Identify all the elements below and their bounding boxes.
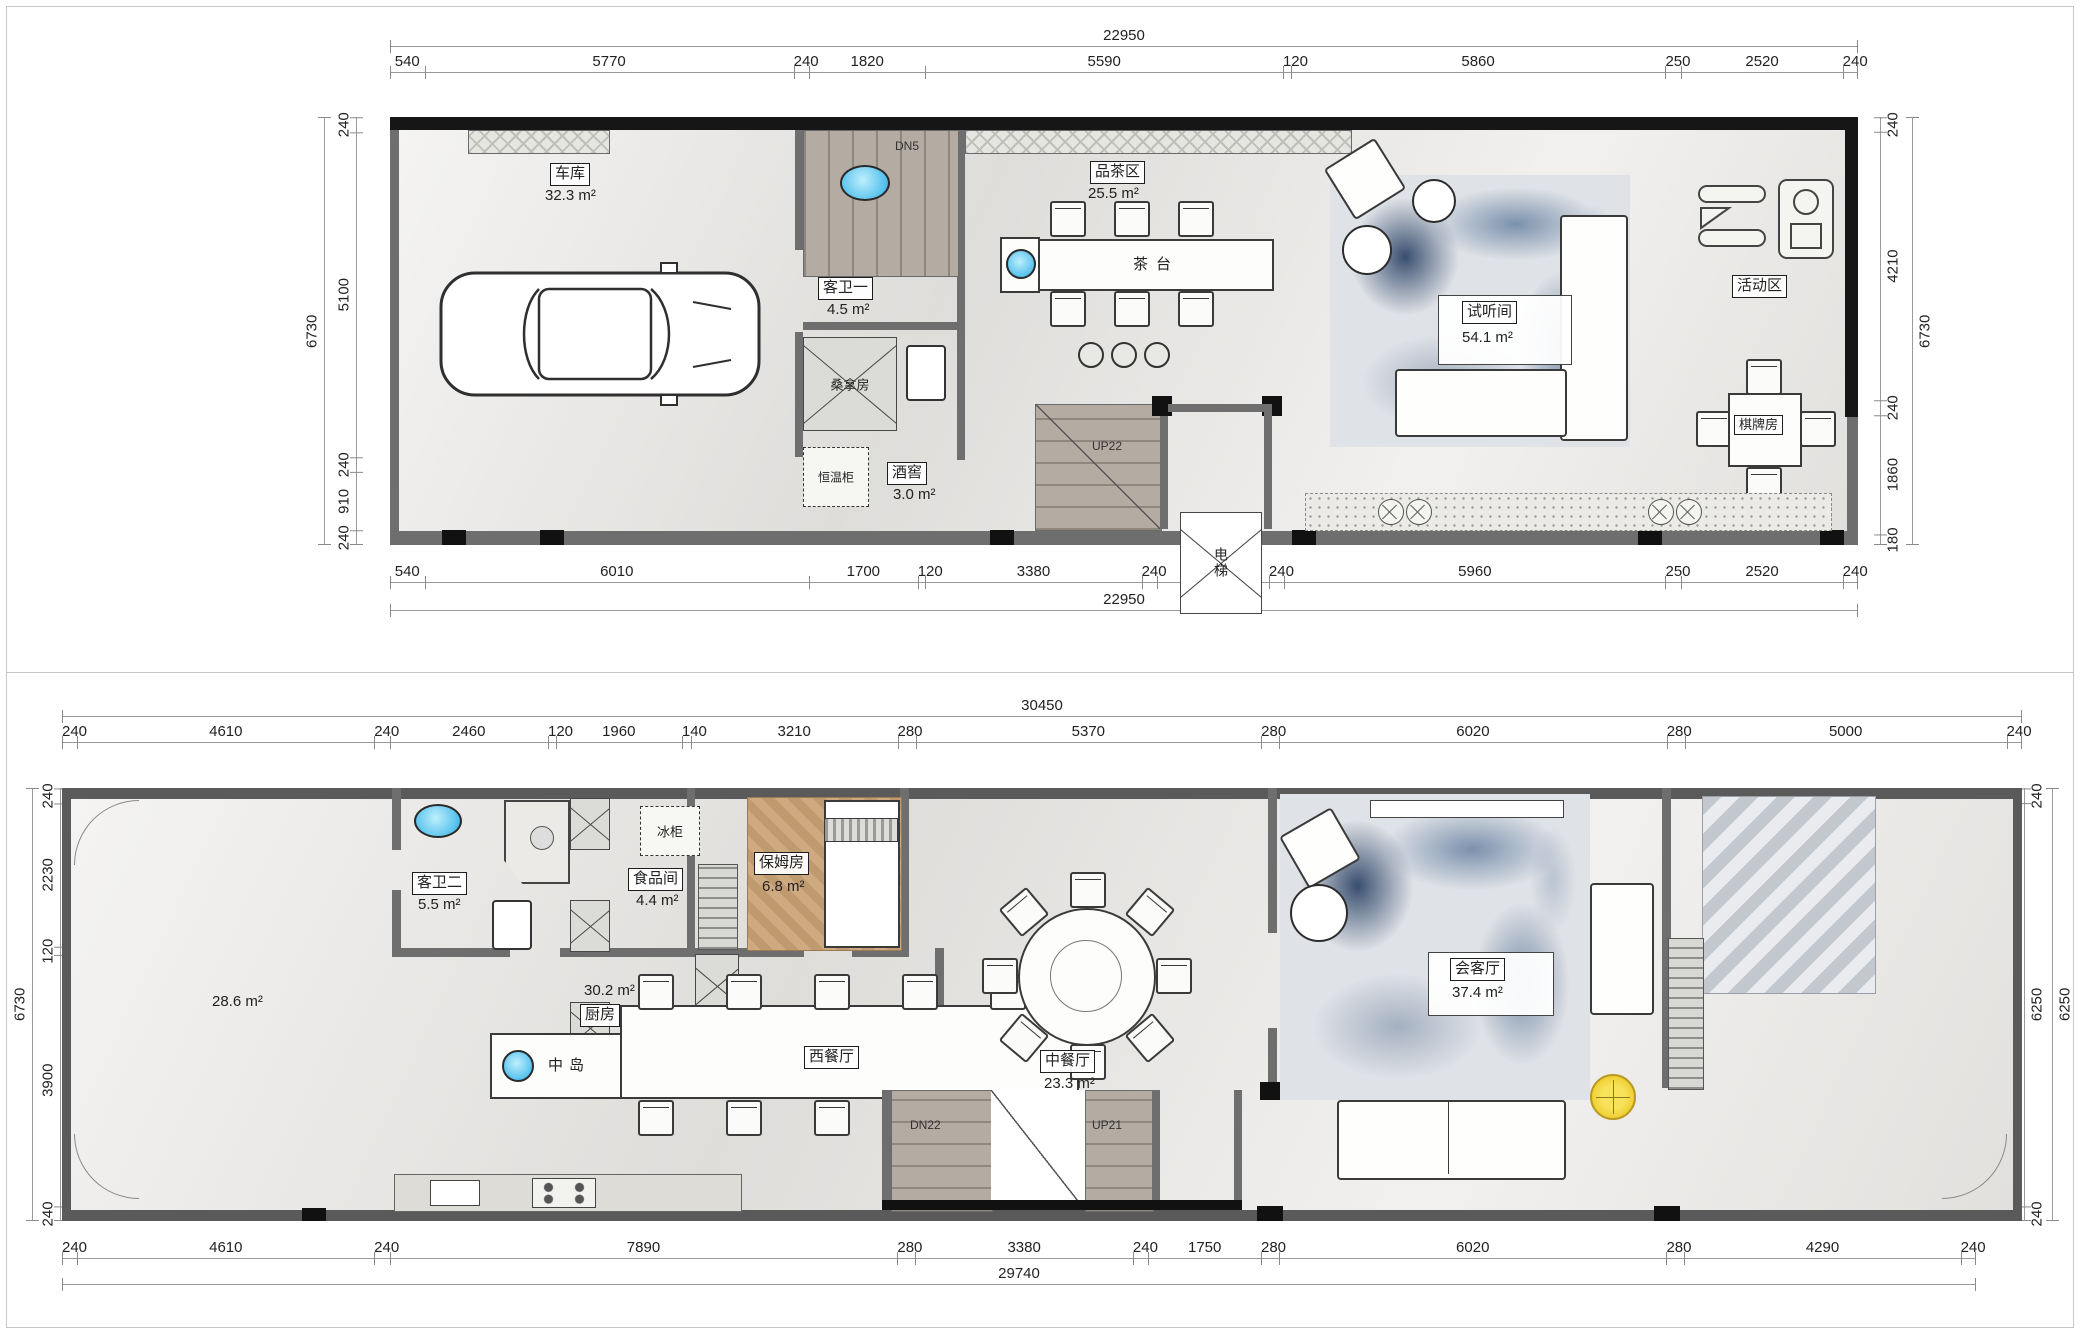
chair bbox=[1746, 359, 1782, 395]
column bbox=[1257, 1206, 1283, 1221]
dim-overall: 30450 bbox=[62, 698, 2022, 716]
dim-segment: 240 bbox=[332, 117, 356, 132]
side-table-round bbox=[1290, 884, 1348, 942]
lower-dim-left-outer: 6730 bbox=[8, 788, 33, 1221]
wall bbox=[1845, 117, 1858, 417]
wall bbox=[392, 890, 401, 956]
dim-segment: 240 bbox=[36, 788, 60, 803]
fan-icon bbox=[1406, 499, 1432, 525]
dim-overall: 6730 bbox=[8, 788, 32, 1221]
wall bbox=[1160, 404, 1168, 529]
door-arc bbox=[74, 800, 139, 865]
dim-segment: 6020 bbox=[1279, 724, 1667, 742]
dim-segment: 240 bbox=[1961, 1240, 1976, 1258]
dim-segment: 3210 bbox=[691, 724, 898, 742]
car-icon bbox=[435, 257, 765, 412]
upper-floor-plan: 车库 32.3 m² DN5 客卫一 4.5 m² 桑拿房 恒温柜 酒窖 3.0… bbox=[390, 117, 1858, 545]
dim-segment: 5000 bbox=[1685, 724, 2007, 742]
stairs-up-label: UP21 bbox=[1092, 1118, 1122, 1132]
dim-segment: 5100 bbox=[332, 132, 356, 456]
dim-segment: 240 bbox=[374, 1240, 389, 1258]
dim-overall: 6730 bbox=[1913, 117, 1937, 545]
column bbox=[540, 530, 564, 545]
room-label-wine-cabinet: 恒温柜 bbox=[818, 469, 854, 486]
dim-segment: 120 bbox=[36, 947, 60, 955]
room-area-garage: 32.3 m² bbox=[545, 187, 596, 205]
chair bbox=[1156, 958, 1192, 994]
room-label-nanny: 保姆房 bbox=[754, 852, 809, 875]
stairs-down bbox=[803, 130, 959, 277]
wall bbox=[390, 130, 399, 531]
dim-segment: 1750 bbox=[1148, 1240, 1261, 1258]
sheet-divider bbox=[6, 672, 2074, 673]
cabinet bbox=[570, 900, 610, 952]
fan-icon bbox=[1676, 499, 1702, 525]
dim-segment: 240 bbox=[1142, 564, 1157, 582]
dim-segment: 3380 bbox=[925, 564, 1141, 582]
dim-segment: 540 bbox=[390, 564, 425, 582]
dim-overall: 22950 bbox=[390, 28, 1858, 46]
wall bbox=[803, 322, 965, 330]
room-area-left-room: 28.6 m² bbox=[212, 993, 263, 1011]
dim-segment: 250 bbox=[1665, 54, 1681, 72]
room-label-activity: 活动区 bbox=[1732, 275, 1787, 298]
dim-segment: 240 bbox=[2007, 724, 2022, 742]
dim-segment: 280 bbox=[1667, 724, 1685, 742]
room-label-guest-bath2: 客卫二 bbox=[412, 872, 467, 895]
dim-segment: 6250 bbox=[2025, 803, 2049, 1205]
upper-dim-left-outer: 6730 bbox=[300, 117, 325, 545]
dim-segment: 6020 bbox=[1279, 1240, 1666, 1258]
sofa-seam bbox=[1448, 1102, 1449, 1174]
dim-segment: 5590 bbox=[925, 54, 1283, 72]
striped-rug bbox=[1702, 796, 1876, 994]
tv-cabinet bbox=[1370, 800, 1564, 818]
room-area-guest-bath: 4.5 m² bbox=[827, 301, 870, 319]
lower-dim-top-segments: 2404610240246012019601403210280537028060… bbox=[62, 720, 2022, 743]
stool bbox=[1078, 342, 1104, 368]
sink-icon bbox=[840, 165, 890, 201]
sauna-box: 桑拿房 bbox=[803, 337, 897, 431]
lower-dim-right-outer: 6250 bbox=[2052, 788, 2077, 1221]
fan-icon bbox=[1378, 499, 1404, 525]
room-label-wine-cellar: 酒窖 bbox=[887, 462, 927, 485]
cabinet-row bbox=[468, 130, 610, 154]
tea-table-label: 茶台 bbox=[1133, 256, 1179, 274]
dim-segment: 1860 bbox=[1881, 415, 1905, 533]
room-area-wine-cellar: 3.0 m² bbox=[893, 486, 936, 504]
room-label-freezer: 冰柜 bbox=[657, 822, 683, 841]
room-label-kitchen: 厨房 bbox=[580, 1004, 620, 1027]
chair bbox=[638, 974, 674, 1010]
dim-segment: 240 bbox=[1881, 400, 1905, 415]
upper-dim-right-outer: 6730 bbox=[1912, 117, 1937, 545]
chair bbox=[1114, 291, 1150, 327]
dim-segment: 5960 bbox=[1284, 564, 1665, 582]
lazy-susan bbox=[1050, 940, 1122, 1012]
chair bbox=[726, 1100, 762, 1136]
dim-segment: 240 bbox=[2025, 1206, 2049, 1221]
chair bbox=[1696, 411, 1732, 447]
wall bbox=[2013, 788, 2022, 1221]
lower-dim-top-overall: 30450 bbox=[62, 694, 2022, 717]
room-area-kitchen: 30.2 m² bbox=[584, 982, 635, 1000]
dim-segment: 240 bbox=[36, 1206, 60, 1221]
dim-segment: 7890 bbox=[390, 1240, 898, 1258]
stairs-dn-label: DN5 bbox=[895, 139, 919, 153]
chair bbox=[1178, 201, 1214, 237]
sofa bbox=[1337, 1100, 1566, 1180]
cabinet bbox=[570, 798, 610, 850]
stairs-cut-line bbox=[1035, 404, 1160, 529]
wall bbox=[1168, 404, 1272, 412]
dim-segment: 280 bbox=[1666, 1240, 1684, 1258]
wall bbox=[390, 117, 1858, 130]
door-arc bbox=[74, 1134, 139, 1199]
dim-segment: 5860 bbox=[1291, 54, 1666, 72]
room-area-av-room: 54.1 m² bbox=[1462, 329, 1513, 347]
column bbox=[990, 530, 1014, 545]
wall bbox=[795, 332, 803, 457]
cabinet bbox=[1668, 938, 1704, 1090]
side-table-round bbox=[1342, 225, 1392, 275]
chair bbox=[814, 1100, 850, 1136]
lower-dim-left-segments: 24022301203900240 bbox=[36, 788, 61, 1221]
column bbox=[1820, 530, 1844, 545]
room-label-pantry: 食品间 bbox=[628, 868, 683, 891]
shower-drain-icon bbox=[530, 826, 554, 850]
chair bbox=[814, 974, 850, 1010]
dim-segment: 540 bbox=[390, 54, 425, 72]
dim-segment: 120 bbox=[918, 564, 926, 582]
tea-table: 茶台 bbox=[1038, 239, 1274, 291]
upper-dim-right-segments: 24042102401860180 bbox=[1880, 117, 1905, 545]
wall bbox=[392, 948, 510, 957]
elevator-label: 电梯 bbox=[1211, 547, 1231, 579]
column bbox=[1292, 530, 1316, 545]
chair bbox=[1070, 872, 1106, 908]
wall bbox=[1847, 417, 1858, 545]
wall bbox=[1234, 1090, 1242, 1210]
dim-segment: 2520 bbox=[1681, 54, 1842, 72]
room-area-living: 37.4 m² bbox=[1452, 984, 1503, 1002]
toilet-icon bbox=[492, 900, 532, 950]
dim-segment: 240 bbox=[1843, 54, 1858, 72]
dim-segment: 120 bbox=[1283, 54, 1291, 72]
dim-segment: 910 bbox=[332, 472, 356, 530]
sink-icon bbox=[414, 804, 462, 838]
sink-icon bbox=[1006, 249, 1036, 279]
sofa bbox=[1395, 369, 1567, 437]
wall bbox=[1268, 1028, 1277, 1090]
dim-segment: 2460 bbox=[390, 724, 548, 742]
room-label-cn-dining: 中餐厅 bbox=[1040, 1050, 1095, 1073]
chair bbox=[1050, 201, 1086, 237]
room-label-tea-area: 品茶区 bbox=[1090, 161, 1145, 184]
dim-segment: 2230 bbox=[36, 803, 60, 946]
wall bbox=[392, 788, 401, 850]
room-area-guest-bath2: 5.5 m² bbox=[418, 896, 461, 914]
dim-overall: 6250 bbox=[2053, 788, 2077, 1221]
dim-segment: 250 bbox=[1665, 564, 1681, 582]
stairs-up bbox=[1085, 1090, 1154, 1212]
floor-plan-sheet: 22950 5405770240182055901205860250252024… bbox=[0, 0, 2080, 1334]
dim-segment: 280 bbox=[1261, 724, 1279, 742]
fan-icon bbox=[1648, 499, 1674, 525]
dim-segment: 240 bbox=[62, 724, 77, 742]
freezer-box: 冰柜 bbox=[640, 806, 700, 856]
dim-segment: 1820 bbox=[809, 54, 925, 72]
room-label-guest-bath: 客卫一 bbox=[818, 277, 873, 300]
wall bbox=[62, 788, 71, 1221]
lower-dim-bottom-overall: 29740 bbox=[62, 1262, 1976, 1285]
dim-segment: 1960 bbox=[556, 724, 682, 742]
dim-segment: 4610 bbox=[77, 1240, 374, 1258]
dim-segment: 240 bbox=[62, 1240, 77, 1258]
wall bbox=[795, 130, 803, 250]
room-label-garage: 车库 bbox=[550, 163, 590, 186]
room-label-west-dining: 西餐厅 bbox=[804, 1046, 859, 1069]
shelving bbox=[698, 864, 738, 950]
upper-dim-bottom-segments: 5406010170012033802401750240596025025202… bbox=[390, 560, 1858, 583]
wall bbox=[1268, 788, 1277, 933]
chair bbox=[902, 974, 938, 1010]
dim-segment: 240 bbox=[332, 457, 356, 472]
side-table-round bbox=[1412, 179, 1456, 223]
column bbox=[442, 530, 466, 545]
lower-floor-plan: 28.6 m² 客卫二 5.5 m² 冰柜 食品间 4.4 m² 保姆房 6.8… bbox=[62, 788, 2022, 1221]
wall bbox=[62, 1210, 2022, 1221]
dim-segment: 5370 bbox=[916, 724, 1262, 742]
island-label: 中岛 bbox=[548, 1057, 590, 1075]
stairs-down bbox=[891, 1090, 993, 1212]
dim-segment: 1700 bbox=[809, 564, 918, 582]
dim-segment: 3900 bbox=[36, 955, 60, 1206]
chair bbox=[1114, 201, 1150, 237]
room-label-sauna: 桑拿房 bbox=[830, 375, 869, 394]
door-arc bbox=[1942, 1134, 2007, 1199]
chair bbox=[726, 974, 762, 1010]
wall bbox=[882, 1090, 891, 1210]
dim-segment: 240 bbox=[1881, 117, 1905, 132]
dim-segment: 3380 bbox=[915, 1240, 1133, 1258]
stool bbox=[1111, 342, 1137, 368]
column bbox=[1654, 1206, 1680, 1221]
dim-segment: 240 bbox=[332, 530, 356, 545]
dim-segment: 240 bbox=[1133, 1240, 1148, 1258]
dim-overall: 6730 bbox=[300, 117, 324, 545]
chair bbox=[1800, 411, 1836, 447]
dim-segment: 4610 bbox=[77, 724, 374, 742]
chair bbox=[982, 958, 1018, 994]
chair bbox=[1050, 291, 1086, 327]
round-side-table-yellow bbox=[1590, 1074, 1636, 1120]
room-label-living: 会客厅 bbox=[1450, 958, 1505, 981]
column bbox=[1638, 530, 1662, 545]
room-label-av-room: 试听间 bbox=[1462, 301, 1517, 324]
dim-segment: 4290 bbox=[1684, 1240, 1960, 1258]
room-label-chess-room: 棋牌房 bbox=[1734, 415, 1783, 435]
gym-equipment-icon bbox=[1695, 172, 1845, 267]
stairs-cut-line bbox=[991, 1090, 1085, 1210]
dim-segment: 280 bbox=[898, 724, 916, 742]
toilet-icon bbox=[906, 345, 946, 401]
dim-segment: 240 bbox=[1269, 564, 1284, 582]
dim-segment: 5770 bbox=[425, 54, 794, 72]
upper-dim-bottom-overall: 22950 bbox=[390, 588, 1858, 611]
dim-segment: 180 bbox=[1881, 534, 1905, 545]
stove-icon bbox=[532, 1178, 596, 1208]
wall bbox=[882, 1200, 1242, 1210]
bed-pillow bbox=[824, 818, 898, 842]
counter-sink-icon bbox=[430, 1180, 480, 1206]
column bbox=[302, 1208, 326, 1221]
wall bbox=[1152, 1090, 1160, 1210]
chair bbox=[1178, 291, 1214, 327]
dim-segment: 240 bbox=[794, 54, 809, 72]
elevator-box: 电梯 bbox=[1180, 512, 1262, 614]
dim-segment: 2520 bbox=[1681, 564, 1842, 582]
upper-dim-left-segments: 2405100240910240 bbox=[332, 117, 357, 545]
dim-segment: 140 bbox=[682, 724, 691, 742]
lower-dim-right-segments: 2406250240 bbox=[2024, 788, 2049, 1221]
lower-dim-bottom-segments: 2404610240789028033802401750280602028042… bbox=[62, 1236, 1976, 1259]
upper-dim-top-segments: 54057702401820559012058602502520240 bbox=[390, 50, 1858, 73]
room-area-nanny: 6.8 m² bbox=[762, 878, 805, 896]
dim-segment: 280 bbox=[1261, 1240, 1279, 1258]
dim-segment: 240 bbox=[374, 724, 389, 742]
dim-segment: 240 bbox=[2025, 788, 2049, 803]
upper-dim-top-overall: 22950 bbox=[390, 24, 1858, 47]
cabinet-row bbox=[965, 130, 1352, 154]
dim-segment: 6010 bbox=[425, 564, 809, 582]
chair bbox=[638, 1100, 674, 1136]
sink-icon bbox=[502, 1050, 534, 1082]
sofa bbox=[1590, 883, 1654, 1015]
wine-cabinet-box: 恒温柜 bbox=[803, 447, 869, 507]
dim-segment: 240 bbox=[1843, 564, 1858, 582]
dim-segment: 4210 bbox=[1881, 132, 1905, 400]
stairs-dn-label: DN22 bbox=[910, 1118, 941, 1132]
dim-overall: 29740 bbox=[62, 1266, 1976, 1284]
dim-segment: 280 bbox=[897, 1240, 915, 1258]
wall bbox=[1264, 404, 1272, 529]
dim-segment: 120 bbox=[548, 724, 556, 742]
dim-overall: 22950 bbox=[390, 592, 1858, 610]
room-area-pantry: 4.4 m² bbox=[636, 892, 679, 910]
stool bbox=[1144, 342, 1170, 368]
